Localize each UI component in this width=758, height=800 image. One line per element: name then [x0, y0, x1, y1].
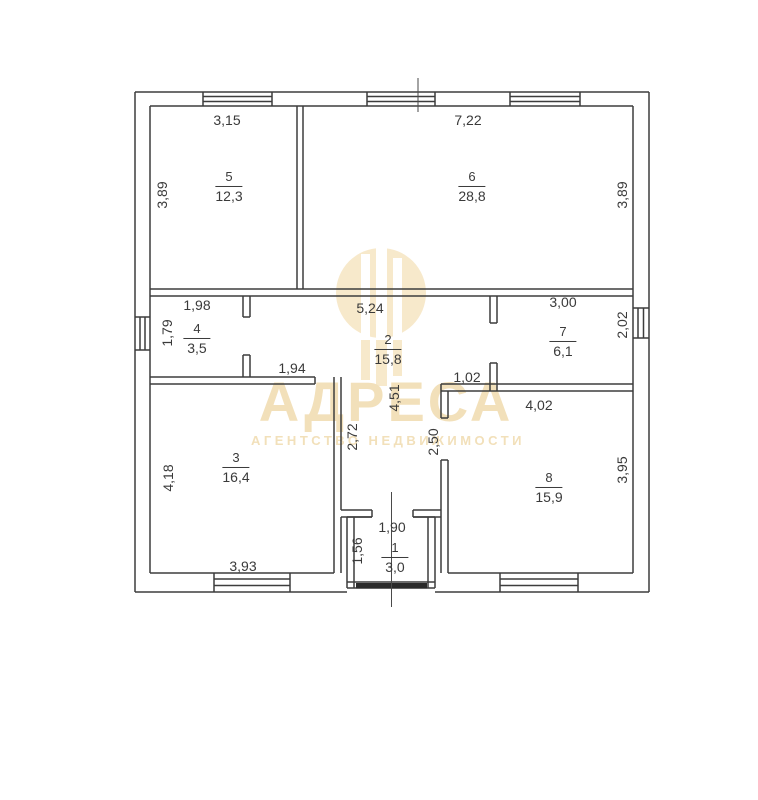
dim-room3-width: 3,93 — [229, 558, 256, 574]
dim-hall-right: 2,50 — [425, 428, 441, 455]
room-1-area: 3,0 — [381, 558, 408, 575]
room-7-number: 7 — [549, 325, 576, 342]
room-2-number: 2 — [374, 333, 401, 350]
dim-room4-height: 1,79 — [159, 319, 175, 346]
room-4-area: 3,5 — [183, 339, 210, 356]
room-3-label: 3 16,4 — [222, 449, 249, 485]
floorplan-drawing — [0, 0, 758, 800]
dim-room6-height: 3,89 — [614, 181, 630, 208]
dim-wall-gap: 1,02 — [453, 369, 480, 385]
room-8-area: 15,9 — [535, 488, 562, 505]
room-2-label: 2 15,8 — [374, 331, 401, 367]
dim-room2-width: 5,24 — [356, 300, 383, 316]
room-4-label: 4 3,5 — [183, 320, 210, 356]
room-5-number: 5 — [215, 170, 242, 187]
dim-room7-height: 2,02 — [614, 311, 630, 338]
dim-room4-width: 1,98 — [183, 297, 210, 313]
room-1-label: 1 3,0 — [381, 539, 408, 575]
dim-hall-length: 4,51 — [386, 384, 402, 411]
dim-hall-left: 2,72 — [344, 423, 360, 450]
room-5-label: 5 12,3 — [215, 168, 242, 204]
dim-room8-width: 4,02 — [525, 397, 552, 413]
dim-room6-width: 7,22 — [454, 112, 481, 128]
dim-room8-height: 3,95 — [614, 456, 630, 483]
dim-room7-width: 3,00 — [549, 294, 576, 310]
dim-room1-height: 1,56 — [349, 537, 365, 564]
room-8-number: 8 — [535, 471, 562, 488]
dim-room5-height: 3,89 — [154, 181, 170, 208]
room-3-number: 3 — [222, 451, 249, 468]
room-7-label: 7 6,1 — [549, 323, 576, 359]
room-1-number: 1 — [381, 541, 408, 558]
room-2-area: 15,8 — [374, 350, 401, 367]
dim-room1-width: 1,90 — [378, 519, 405, 535]
room-6-number: 6 — [458, 170, 485, 187]
room-8-label: 8 15,9 — [535, 469, 562, 505]
dim-room5-width: 3,15 — [213, 112, 240, 128]
floorplan-page: АДРЕСА АГЕНТСТВО НЕДВИЖИМОСТИ — [0, 0, 758, 800]
room-6-label: 6 28,8 — [458, 168, 485, 204]
room-6-area: 28,8 — [458, 187, 485, 204]
room-3-area: 16,4 — [222, 468, 249, 485]
room-4-number: 4 — [183, 322, 210, 339]
dim-room3-height: 4,18 — [160, 464, 176, 491]
dim-hall-width: 1,94 — [278, 360, 305, 376]
room-7-area: 6,1 — [549, 342, 576, 359]
room-5-area: 12,3 — [215, 187, 242, 204]
